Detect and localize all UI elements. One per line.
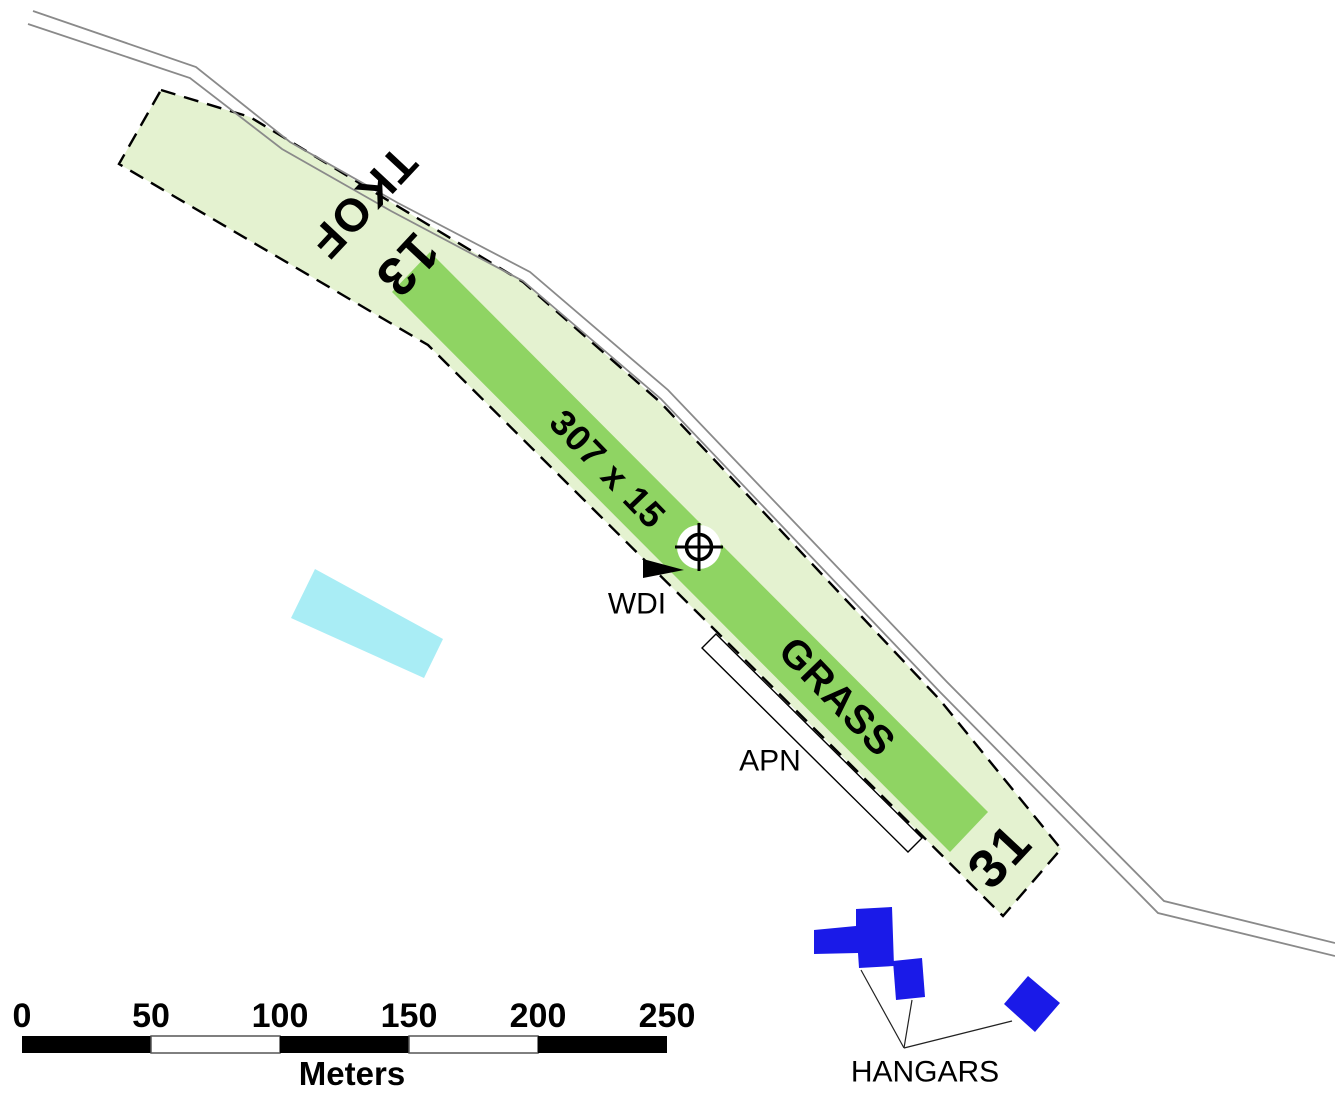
hangars-label: HANGARS xyxy=(851,1056,999,1089)
scale-bar-segment-1 xyxy=(22,1036,151,1053)
airfield-map: TKOF 13 307 x 15 GRASS 31 WDI APN HANGAR… xyxy=(0,0,1335,1094)
hangar-building-3 xyxy=(1004,976,1060,1032)
scale-unit-label: Meters xyxy=(299,1055,405,1092)
scale-tick-150: 150 xyxy=(381,997,438,1035)
scale-tick-200: 200 xyxy=(510,997,567,1035)
scale-tick-50: 50 xyxy=(132,997,170,1035)
wdi-label: WDI xyxy=(608,588,666,621)
cyan-building xyxy=(291,569,443,678)
apron-label: APN xyxy=(739,745,801,778)
scale-bar-segment-3 xyxy=(280,1036,409,1053)
hangars-leader-lines xyxy=(861,970,1012,1048)
scale-bar: 0 50 100 150 200 250 Meters xyxy=(13,997,696,1092)
scale-bar-segment-2 xyxy=(151,1036,280,1053)
scale-bar-segment-4 xyxy=(409,1036,538,1053)
scale-tick-0: 0 xyxy=(13,997,32,1035)
hangar-building-2 xyxy=(893,958,925,1000)
hangar-building-1 xyxy=(814,907,894,968)
scale-tick-100: 100 xyxy=(252,997,309,1035)
scale-bar-segment-5 xyxy=(538,1036,667,1053)
scale-tick-250: 250 xyxy=(639,997,696,1035)
